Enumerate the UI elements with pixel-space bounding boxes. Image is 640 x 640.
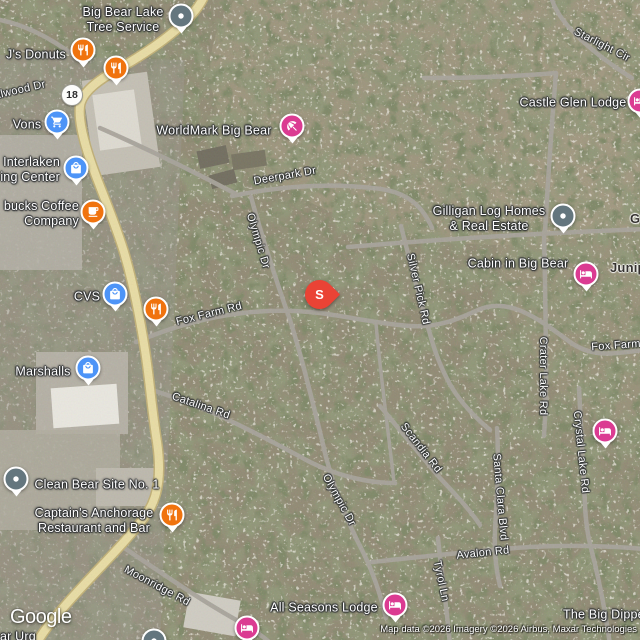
g-partial-area-label[interactable]: G [630, 211, 640, 227]
dot-icon [557, 210, 570, 223]
bed-icon [599, 425, 612, 438]
restaurant-icon [150, 303, 163, 316]
castle-glen-lodge-label[interactable]: Castle Glen Lodge [520, 95, 627, 110]
dot-icon [148, 635, 161, 640]
restaurant-icon [166, 509, 179, 522]
restaurant-unlabeled-2-pin[interactable] [144, 297, 169, 322]
coffee-cup-icon [87, 206, 100, 219]
cabin-in-big-bear-pin[interactable] [574, 262, 599, 287]
marshalls-pin[interactable] [76, 356, 101, 381]
captains-anchorage-label[interactable]: Captain's AnchorageRestaurant and Bar [35, 506, 154, 537]
map-attribution: Map data ©2026 Imagery ©2026 Airbus, Max… [380, 624, 637, 635]
starbucks-coffee-company-pin[interactable] [81, 200, 106, 225]
map-canvas[interactable]: alwood DrDeerpark DrOlympic DrFox Farm R… [0, 0, 640, 640]
interlaken-shopping-center-pin[interactable] [64, 156, 89, 181]
captains-anchorage-pin[interactable] [160, 503, 185, 528]
google-logo[interactable]: Google [10, 606, 72, 629]
beach-umbrella-icon [286, 120, 299, 133]
big-bear-lake-tree-service-pin[interactable] [169, 4, 194, 29]
big-bear-lake-tree-service-label[interactable]: Big Bear LakeTree Service [82, 5, 163, 36]
vons-label[interactable]: Vons [13, 117, 42, 132]
bed-icon [241, 622, 254, 635]
cvs-label[interactable]: CVS [74, 289, 100, 304]
shopping-bag-icon [82, 362, 95, 375]
bed-icon [389, 599, 402, 612]
worldmark-big-bear-pin[interactable] [280, 114, 305, 139]
cabin-in-big-bear-label[interactable]: Cabin in Big Bear [468, 256, 569, 271]
the-big-dipper-label[interactable]: The Big Dipper [563, 607, 640, 622]
poi-cut-bottom-left-label[interactable]: ar Urg [0, 629, 36, 640]
gilligan-log-homes-label[interactable]: Gilligan Log Homes& Real Estate [433, 204, 546, 235]
restaurant-unlabeled-1-pin[interactable] [104, 56, 129, 81]
gilligan-log-homes-pin[interactable] [551, 204, 576, 229]
restaurant-icon [110, 62, 123, 75]
interlaken-shopping-center-label[interactable]: Interlakening Center [0, 155, 60, 186]
marshalls-label[interactable]: Marshalls [15, 364, 70, 379]
starbucks-coffee-company-label[interactable]: bucks CoffeeCompany [4, 199, 79, 230]
bed-icon [580, 268, 593, 281]
dot-icon [175, 10, 188, 23]
all-seasons-lodge-label[interactable]: All Seasons Lodge [270, 600, 378, 615]
clean-bear-site-no-1-label[interactable]: Clean Bear Site No. 1 [34, 477, 159, 492]
js-donuts-pin[interactable] [71, 38, 96, 63]
shopping-bag-icon [109, 288, 122, 301]
shopping-bag-icon [70, 162, 83, 175]
lodging-unlabeled-2-pin[interactable] [235, 616, 260, 640]
dot-icon [10, 473, 23, 486]
all-seasons-lodge-pin[interactable] [383, 593, 408, 618]
selected-marker-teardrop: S [298, 274, 339, 315]
shopping-cart-icon [51, 116, 64, 129]
js-donuts-label[interactable]: J's Donuts [6, 47, 66, 62]
worldmark-big-bear-label[interactable]: WorldMark Big Bear [156, 123, 271, 138]
selected-marker-letter: S [305, 280, 334, 309]
restaurant-icon [77, 44, 90, 57]
vons-pin[interactable] [45, 110, 70, 135]
juniper-area-label[interactable]: Juniper [610, 260, 640, 276]
route-18-shield: 18 [61, 84, 83, 106]
clean-bear-site-no-1-pin[interactable] [4, 467, 29, 492]
lodging-unlabeled-1-pin[interactable] [593, 419, 618, 444]
cvs-pin[interactable] [103, 282, 128, 307]
bed-icon [634, 95, 640, 108]
